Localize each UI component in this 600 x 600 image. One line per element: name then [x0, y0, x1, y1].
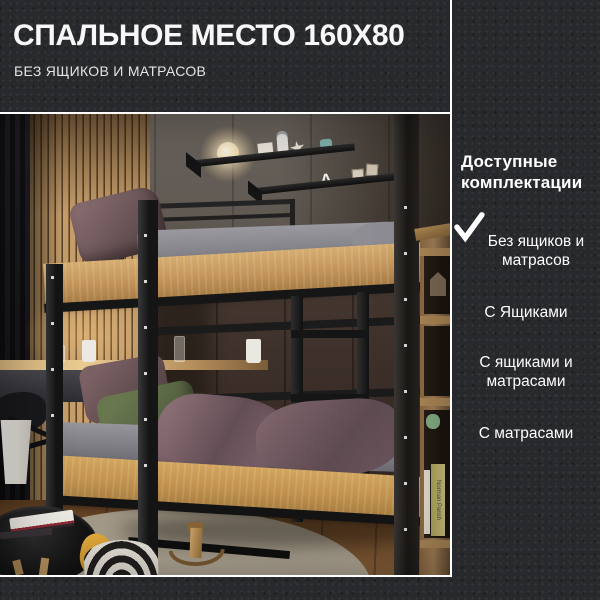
page-subtitle: БЕЗ ЯЩИКОВ И МАТРАСОВ: [14, 63, 206, 79]
option-with-mattresses: С матрасами: [458, 424, 594, 443]
option-with-drawers: С Ящиками: [458, 303, 594, 322]
product-card: СПАЛЬНОЕ МЕСТО 160Х80 БЕЗ ЯЩИКОВ И МАТРА…: [0, 0, 600, 600]
page-title: СПАЛЬНОЕ МЕСТО 160Х80: [13, 20, 443, 52]
option-with-drawers-and-mattresses: С ящиками и матрасами: [458, 353, 594, 391]
photo-vignette: [0, 114, 450, 575]
product-photo: А: [0, 114, 450, 575]
options-panel: Доступные комплектации Без ящиков и матр…: [452, 0, 600, 600]
options-heading: Доступные комплектации: [461, 151, 595, 193]
option-no-drawers-no-mattresses: Без ящиков и матрасов: [458, 232, 600, 270]
divider-horizontal-bottom: [0, 575, 452, 577]
